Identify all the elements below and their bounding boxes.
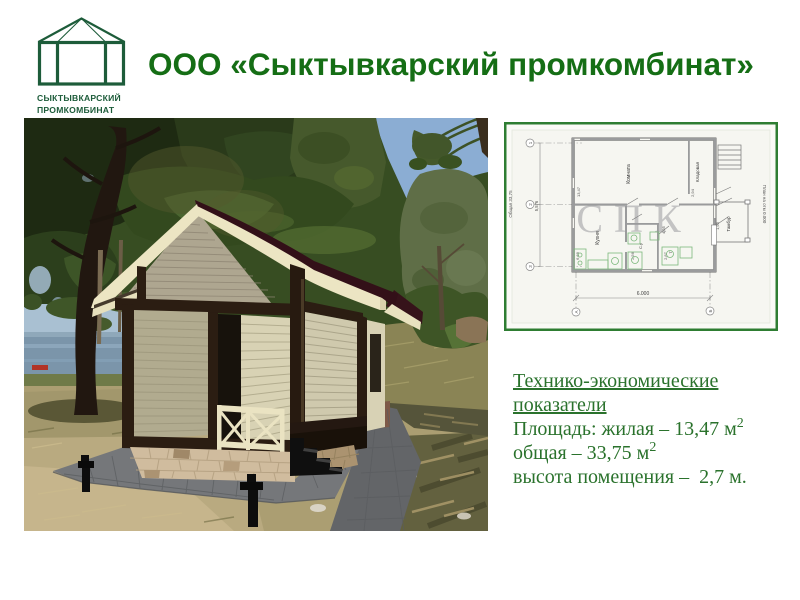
svg-text:4,35: 4,35 xyxy=(661,225,666,234)
svg-text:Кухня: Кухня xyxy=(595,231,601,245)
svg-text:6,68: 6,68 xyxy=(575,251,580,260)
svg-text:13,47: 13,47 xyxy=(576,186,581,197)
svg-text:2,56: 2,56 xyxy=(630,251,635,260)
svg-text:6.000: 6.000 xyxy=(637,291,650,297)
svg-text:Тамбур: Тамбур xyxy=(726,216,731,232)
svg-text:2,94: 2,94 xyxy=(690,188,695,197)
svg-text:1,93: 1,93 xyxy=(715,221,720,230)
svg-text:СЫКТЫВКАРСКИЙ: СЫКТЫВКАРСКИЙ xyxy=(37,92,121,103)
svg-text:План на отм 0.000: План на отм 0.000 xyxy=(762,185,767,224)
svg-text:ПРОМКОМБИНАТ: ПРОМКОМБИНАТ xyxy=(37,105,115,115)
svg-text:Б: Б xyxy=(708,309,713,312)
svg-text:5,576: 5,576 xyxy=(534,200,539,211)
svg-text:А: А xyxy=(574,310,579,313)
svg-text:Общая 33,75: Общая 33,75 xyxy=(508,190,513,218)
svg-text:Комната: Комната xyxy=(626,164,632,184)
svg-text:Кладовая: Кладовая xyxy=(695,161,700,182)
